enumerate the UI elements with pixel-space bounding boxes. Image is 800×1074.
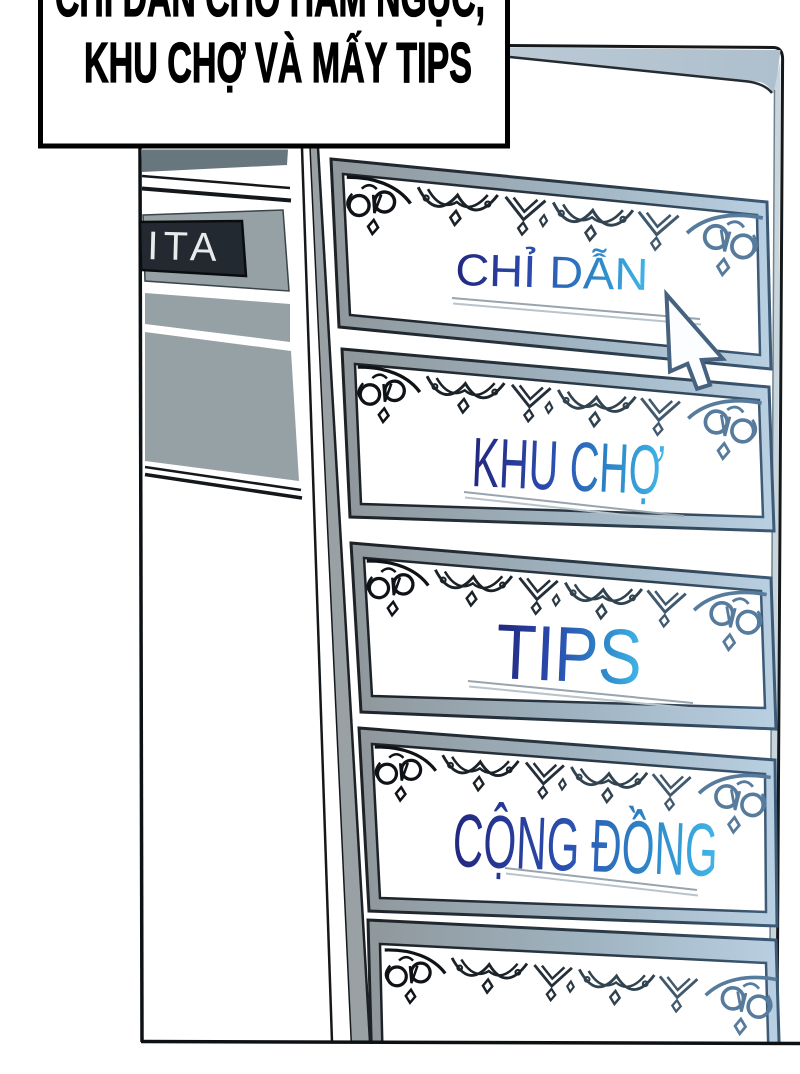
svg-text:CHỈ DẪN: CHỈ DẪN <box>455 244 649 300</box>
svg-text:CHỈ DẪN CHO HẦM NGỤC,: CHỈ DẪN CHO HẦM NGỤC, <box>55 0 485 29</box>
svg-text:KHU CHỢ VÀ MẤY TIPS: KHU CHỢ VÀ MẤY TIPS <box>84 30 472 95</box>
svg-text:TIPS: TIPS <box>494 607 644 701</box>
svg-text:ITA: ITA <box>147 224 222 270</box>
